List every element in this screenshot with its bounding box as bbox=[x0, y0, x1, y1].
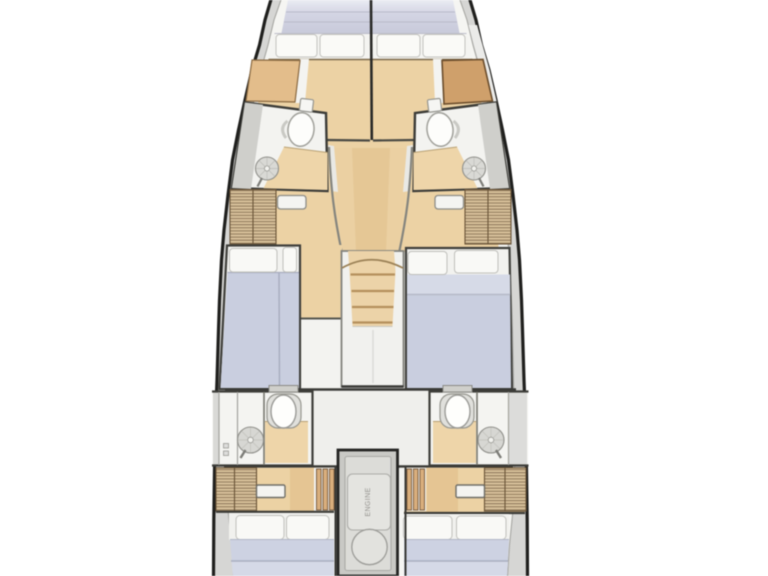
svg-text:ENGINE: ENGINE bbox=[365, 487, 372, 516]
